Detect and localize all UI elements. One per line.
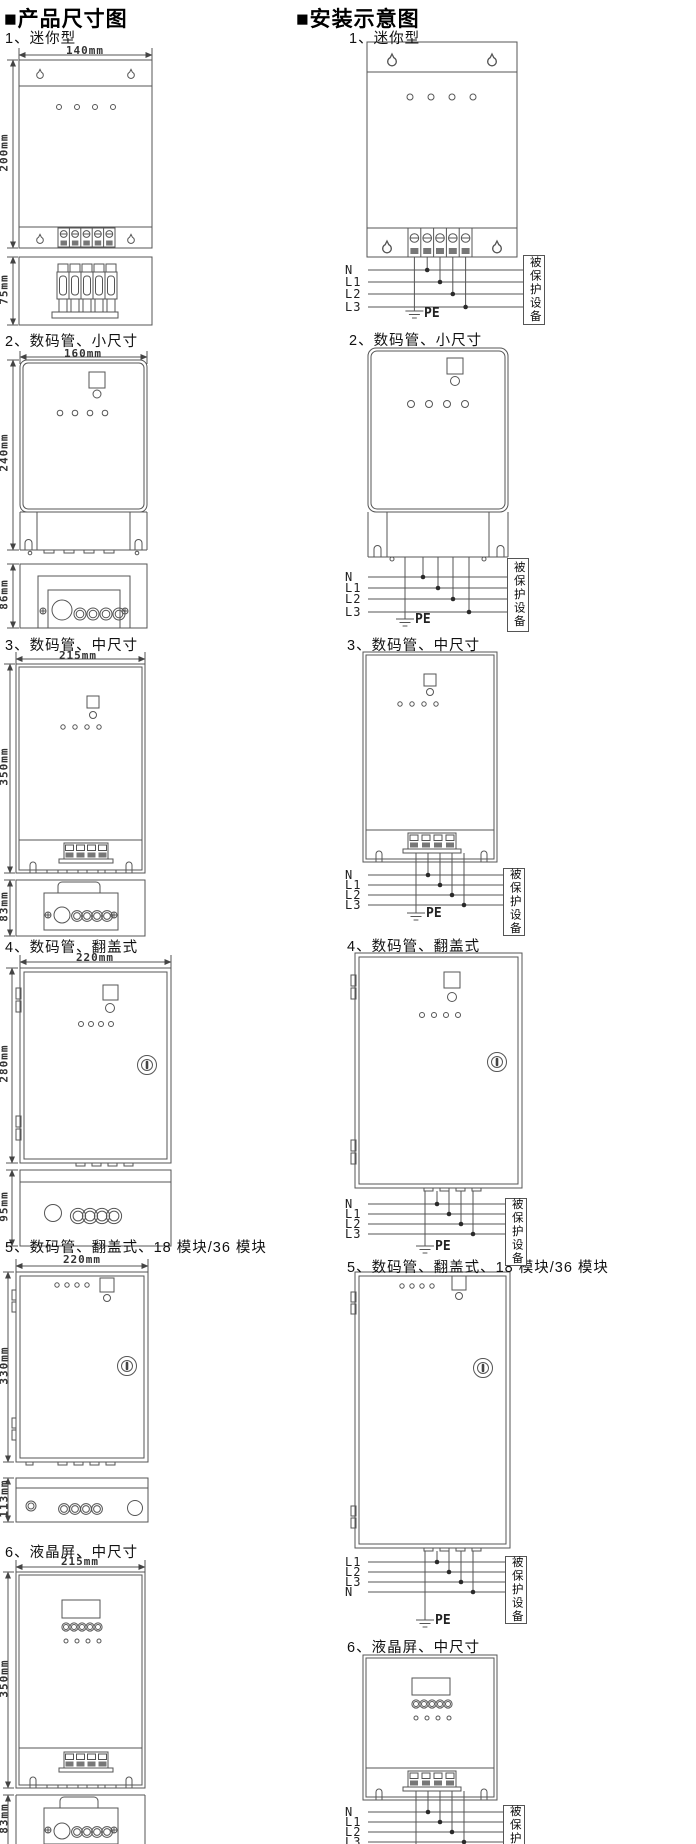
lcd-screen	[62, 1600, 100, 1618]
ground-symbol	[416, 1246, 434, 1253]
dim-width-s6: 215mm	[50, 1555, 110, 1568]
pe-label: PE	[435, 1613, 451, 1628]
cable-gland-icon	[87, 608, 99, 620]
junction-dots	[425, 268, 468, 310]
keyhole-slot-icon	[493, 241, 502, 253]
left-s2-side-view	[7, 564, 147, 628]
ground-symbol	[405, 311, 423, 318]
right-s1-device	[367, 42, 517, 257]
pe-label: PE	[435, 1239, 451, 1254]
terminal-modules	[52, 264, 118, 318]
keyhole-slot-icon	[37, 69, 44, 78]
dim-height-s4: 280mm	[0, 1040, 11, 1088]
cable-gland-icon	[106, 1208, 121, 1223]
ground-symbol	[416, 1620, 434, 1627]
left-s2-front-view	[7, 351, 147, 555]
led-indicators	[55, 1283, 89, 1287]
screw-icon	[40, 608, 46, 614]
left-s5-front-view	[3, 1259, 148, 1465]
junction-dots	[421, 575, 472, 615]
terminal-block	[403, 833, 461, 853]
cable-gland-icon	[81, 1504, 92, 1515]
cable-gland-icon	[94, 1208, 109, 1223]
screw-terminal-icon	[60, 231, 67, 238]
keyhole-slot-icon	[383, 241, 392, 253]
dim-width-s4: 220mm	[65, 951, 125, 964]
led-indicators	[61, 725, 101, 729]
screw-icon	[45, 1827, 51, 1833]
dim-side-s3: 83mm	[0, 883, 11, 931]
wire-label: L3	[345, 1227, 369, 1241]
dim-width-s1: 140mm	[55, 44, 115, 57]
left-s5-bottom-view	[3, 1478, 148, 1522]
right-s2-wiring	[368, 557, 507, 626]
catalog-page: ■产品尺寸图 ■安装示意图 1、迷你型 2、数码管、小尺寸 3、数码管、中尺寸 …	[0, 0, 696, 1844]
junction-dots	[435, 1202, 476, 1237]
keyhole-slot-icon	[388, 54, 397, 66]
dim-side-s5: 113mm	[0, 1475, 11, 1523]
junction-dots	[426, 873, 467, 908]
right-section-6-header: 6、液晶屏、中尺寸	[347, 1636, 480, 1657]
terminal-block	[59, 1752, 113, 1772]
protected-equipment-box: 被保护设备	[505, 1556, 527, 1624]
left-section-5-header: 5、数码管、翻盖式、18 模块/36 模块	[5, 1236, 267, 1257]
pe-label: PE	[426, 906, 442, 921]
pe-label: PE	[415, 612, 431, 627]
terminal-block	[408, 228, 472, 257]
cable-gland-icon	[102, 1827, 113, 1838]
keyhole-slot-icon	[37, 234, 44, 243]
keyhole-slot-icon	[128, 234, 135, 243]
right-section-5-header: 5、数码管、翻盖式、18 模块/36 模块	[347, 1256, 609, 1277]
wire-label: N	[345, 1585, 369, 1599]
terminal-block	[403, 1771, 461, 1791]
cable-gland-icon	[70, 1208, 85, 1223]
left-s3-side-view	[4, 880, 145, 936]
right-section-1-header: 1、迷你型	[349, 27, 420, 48]
led-indicators	[79, 1022, 114, 1027]
right-section-4-header: 4、数码管、翻盖式	[347, 935, 480, 956]
ground-symbol	[396, 619, 414, 626]
cable-gland-icon	[92, 911, 103, 922]
led-indicators	[57, 105, 116, 110]
screw-terminal-icon	[83, 231, 90, 238]
cable-gland-icon	[92, 1504, 103, 1515]
junction-dots	[435, 1560, 476, 1595]
right-s4-device	[351, 953, 522, 1191]
cable-gland-icon	[82, 911, 93, 922]
right-s2-device	[368, 348, 508, 561]
pe-label: PE	[424, 306, 440, 321]
left-s1-side-view	[7, 257, 152, 325]
keyhole-slot-icon	[128, 69, 135, 78]
lock-icon	[138, 1056, 157, 1075]
dim-width-s3: 215mm	[48, 649, 108, 662]
buttons	[412, 1700, 452, 1708]
left-s6-front-view	[3, 1560, 145, 1788]
screw-icon	[45, 912, 51, 918]
left-s6-side-view	[3, 1795, 145, 1844]
right-s6-wiring	[368, 1791, 503, 1844]
dim-height-s5: 330mm	[0, 1342, 11, 1390]
dim-height-s1: 200mm	[0, 129, 11, 177]
screw-terminal-icon	[106, 231, 113, 238]
terminal-block	[58, 228, 115, 247]
led-indicators	[407, 94, 476, 100]
lock-icon	[118, 1357, 137, 1376]
ground-symbol	[407, 913, 425, 920]
screw-terminal-icon	[461, 234, 470, 243]
lock-icon	[488, 1053, 507, 1072]
left-s3-front-view	[4, 652, 145, 873]
led-indicators	[420, 1013, 461, 1018]
dim-side-s2: 86mm	[0, 571, 11, 619]
dim-height-s6: 350mm	[0, 1655, 11, 1703]
led-indicators	[64, 1639, 101, 1643]
wire-label: L2	[345, 287, 369, 301]
cable-gland-icon	[82, 1208, 97, 1223]
wire-label: L3	[345, 1835, 369, 1844]
cable-gland-icon	[82, 1827, 93, 1838]
screw-terminal-icon	[423, 234, 432, 243]
right-s3-device	[363, 652, 497, 862]
protected-equipment-box: 被保护设备	[503, 868, 525, 936]
dim-width-s5: 220mm	[52, 1253, 112, 1266]
screw-terminal-icon	[436, 234, 445, 243]
protected-equipment-box: 被保护设备	[523, 255, 545, 325]
wire-label: L3	[345, 605, 369, 619]
screw-terminal-icon	[95, 231, 102, 238]
cable-gland-icon	[70, 1504, 81, 1515]
left-s4-front-view	[6, 955, 171, 1166]
wire-label: L2	[345, 592, 369, 606]
dim-height-s3: 350mm	[0, 743, 11, 791]
lcd-screen	[412, 1678, 450, 1695]
dim-side-s4: 95mm	[0, 1183, 11, 1231]
keyhole-slot-icon	[488, 54, 497, 66]
protected-equipment-box: 被保护设备	[505, 1198, 527, 1266]
cable-gland-icon	[113, 608, 125, 620]
right-s5-device	[351, 1272, 510, 1551]
dim-side-s6: 83mm	[0, 1795, 11, 1843]
dim-side-s1: 75mm	[0, 266, 11, 314]
wire-label: L3	[345, 898, 369, 912]
led-indicators	[398, 702, 438, 706]
right-section-3-header: 3、数码管、中尺寸	[347, 634, 480, 655]
lock-icon	[474, 1359, 493, 1378]
left-s1-front-view	[7, 48, 152, 248]
wire-label: L3	[345, 300, 369, 314]
led-indicators	[57, 410, 108, 416]
cable-gland-icon	[102, 911, 113, 922]
cable-gland-icon	[72, 1827, 83, 1838]
buttons	[62, 1623, 102, 1631]
junction-dots	[426, 1810, 467, 1844]
cable-gland-icon	[100, 608, 112, 620]
cable-gland-icon	[92, 1827, 103, 1838]
right-s1-wiring	[368, 257, 523, 318]
led-indicators	[400, 1284, 434, 1288]
left-s4-bottom-view	[6, 1170, 171, 1246]
cable-gland-icon	[59, 1504, 70, 1515]
screw-terminal-icon	[72, 231, 79, 238]
dim-width-s2: 160mm	[53, 347, 113, 360]
cable-gland-icon	[72, 911, 83, 922]
screw-terminal-icon	[449, 234, 458, 243]
protected-equipment-box: 被保护设备	[503, 1805, 525, 1844]
led-indicators	[414, 1716, 451, 1720]
screw-terminal-icon	[410, 234, 419, 243]
right-s6-device	[363, 1655, 497, 1800]
cable-gland-icon	[74, 608, 86, 620]
protected-equipment-box: 被保护设备	[507, 558, 529, 632]
led-indicators	[408, 401, 469, 408]
right-section-2-header: 2、数码管、小尺寸	[349, 329, 482, 350]
terminal-block	[59, 843, 113, 863]
dim-height-s2: 240mm	[0, 429, 11, 477]
